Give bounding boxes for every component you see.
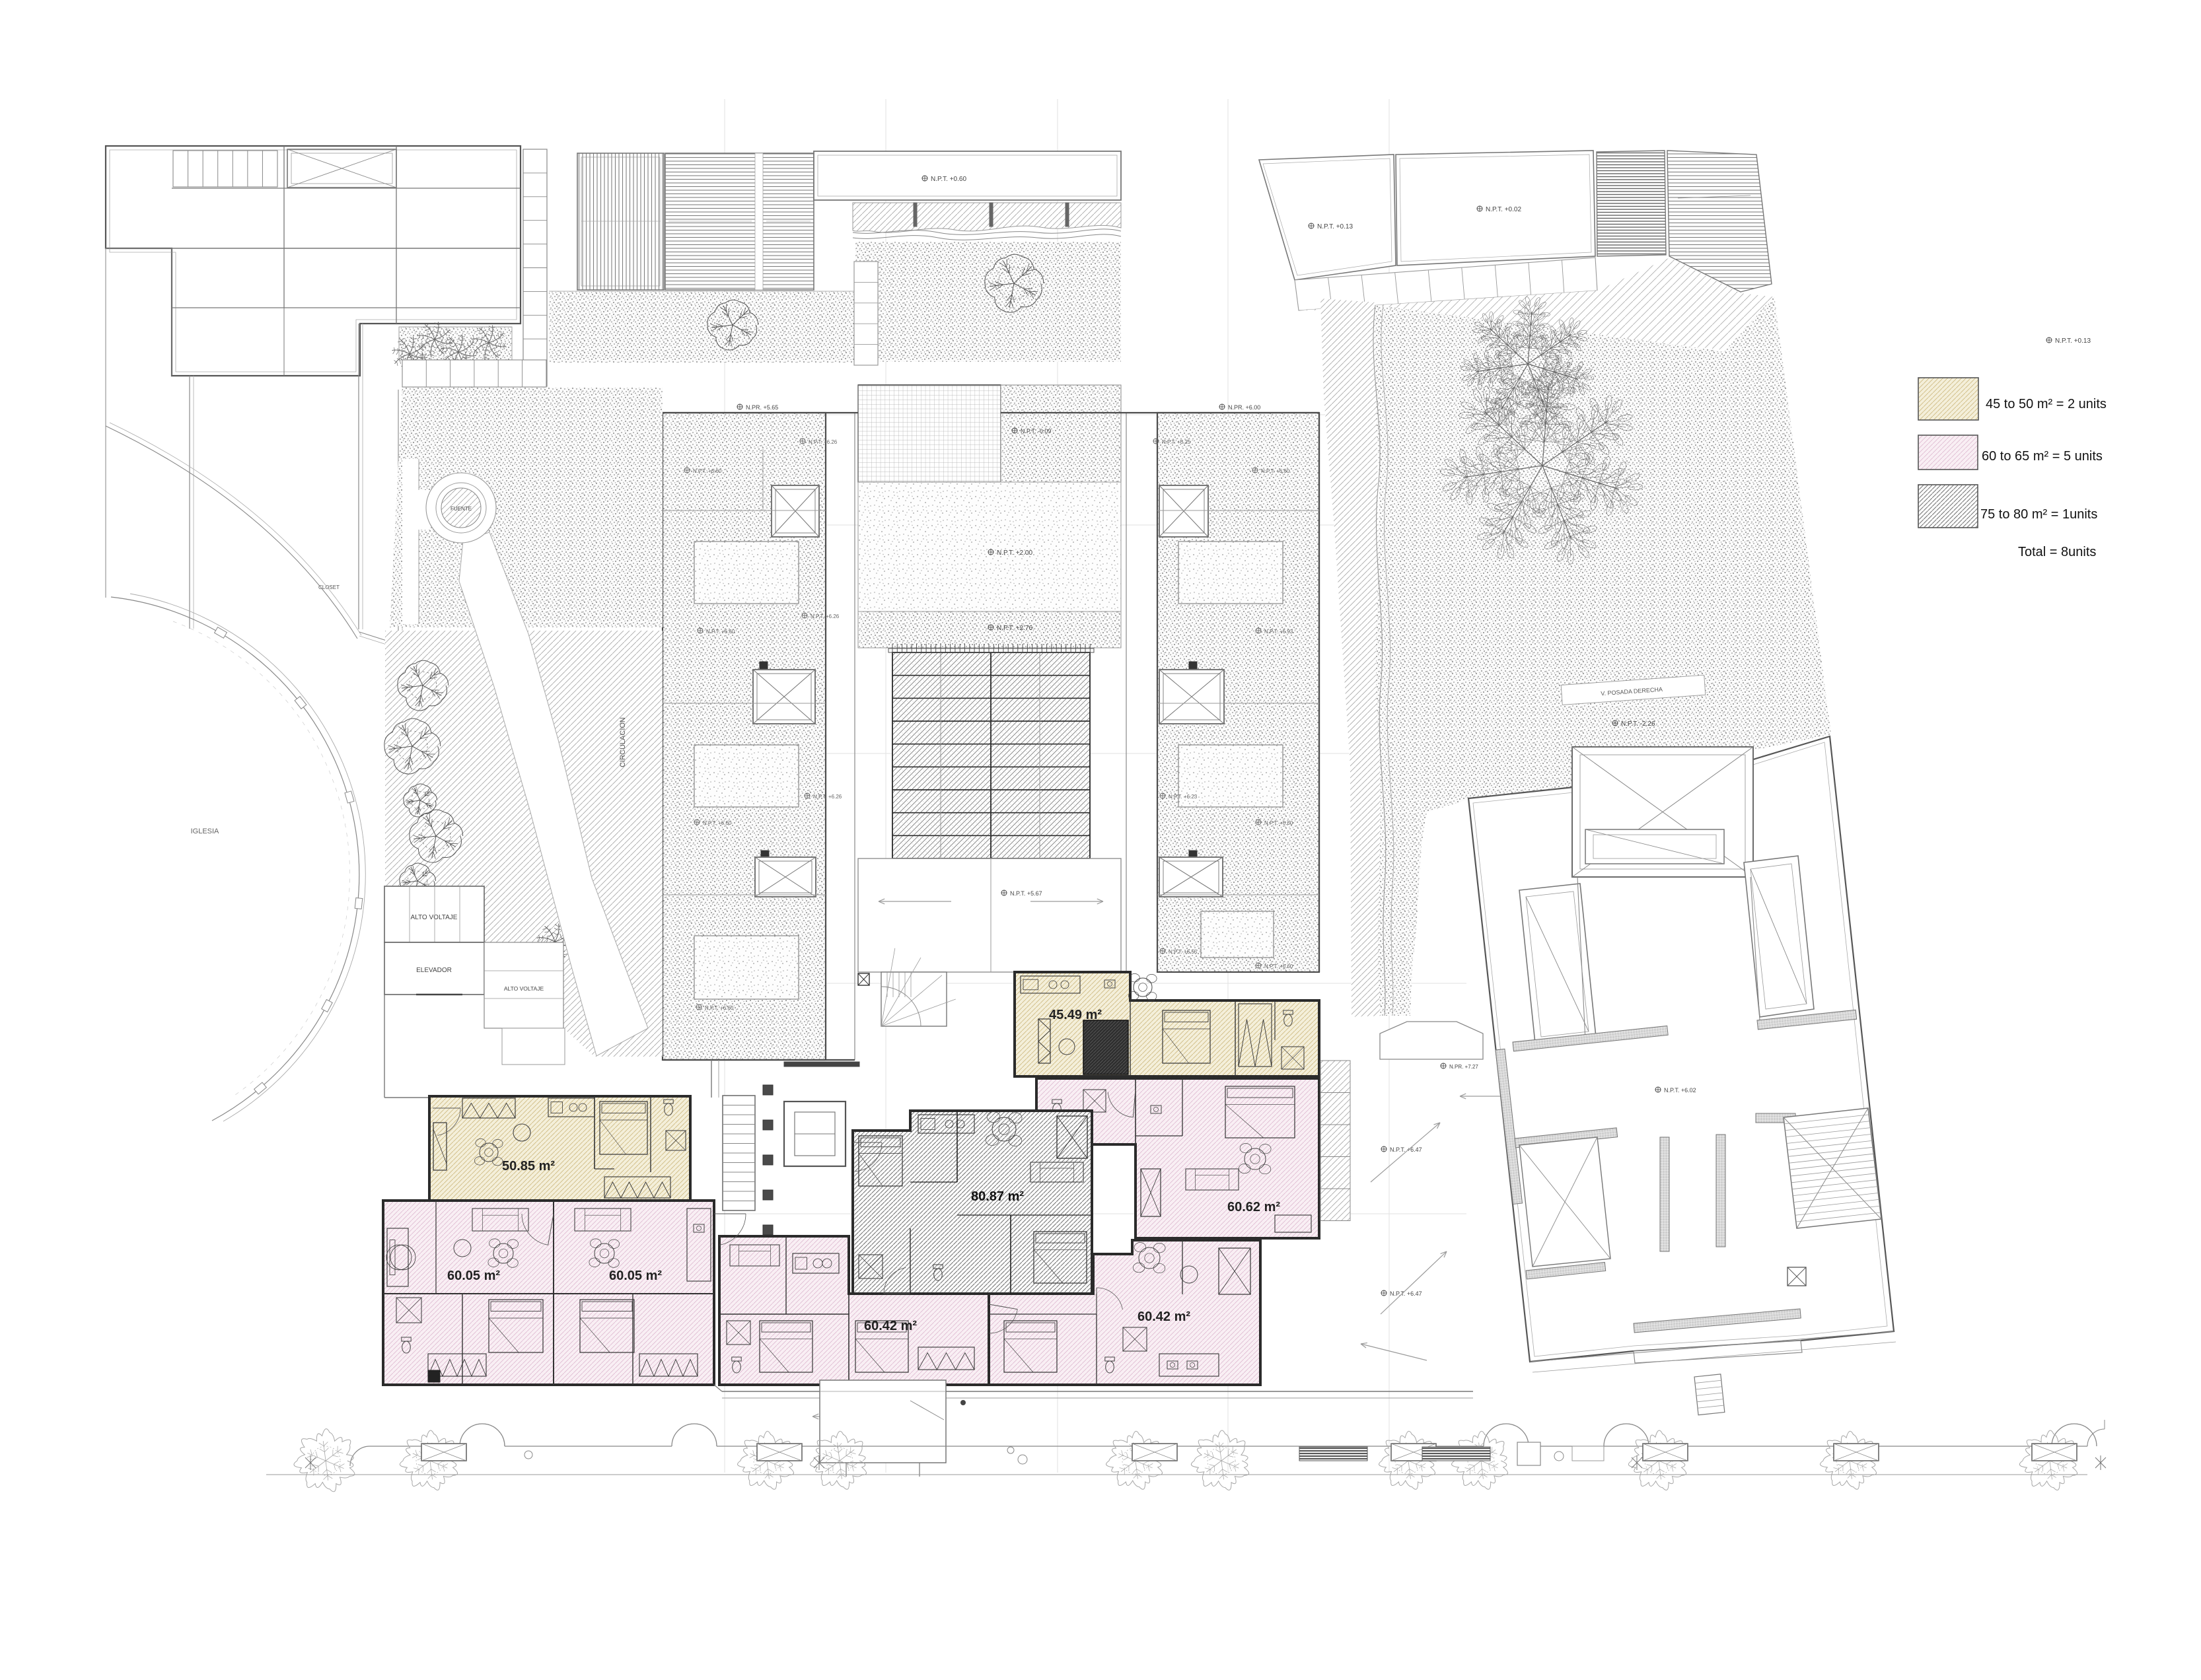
svg-text:N.P.T. +6.60: N.P.T. +6.60	[1261, 468, 1290, 474]
svg-text:N.P.T. +6.26: N.P.T. +6.26	[813, 794, 842, 800]
svg-text:N.P.T. +6.60: N.P.T. +6.60	[706, 629, 735, 635]
svg-text:ALTO VOLTAJE: ALTO VOLTAJE	[504, 985, 544, 992]
svg-text:N.P.T. +6.60: N.P.T. +6.60	[693, 468, 722, 474]
svg-text:N.P.T. +6.60: N.P.T. +6.60	[1264, 963, 1293, 969]
svg-text:ALTO VOLTAJE: ALTO VOLTAJE	[411, 914, 458, 921]
svg-text:N.PR. +5.65: N.PR. +5.65	[746, 404, 778, 411]
svg-text:N.P.T. +0.13: N.P.T. +0.13	[1317, 223, 1353, 230]
svg-text:N.P.T. +6.25: N.P.T. +6.25	[1162, 439, 1191, 445]
svg-text:60.42 m²: 60.42 m²	[864, 1319, 917, 1333]
svg-text:N.P.T. -0.09: N.P.T. -0.09	[1021, 428, 1051, 435]
svg-text:N.P.T. +6.47: N.P.T. +6.47	[1390, 1290, 1422, 1297]
svg-text:75 to 80 m² = 1units: 75 to 80 m² = 1units	[1980, 507, 2097, 522]
svg-text:N.P.T. +6.93: N.P.T. +6.93	[1264, 629, 1293, 635]
svg-text:N.PR. +7.27: N.PR. +7.27	[1449, 1064, 1478, 1070]
svg-text:50.85 m²: 50.85 m²	[502, 1159, 555, 1173]
svg-text:N.P.T. +2.00: N.P.T. +2.00	[997, 549, 1032, 557]
svg-text:N.P.T. -2.26: N.P.T. -2.26	[1621, 720, 1655, 728]
svg-text:FUENTE: FUENTE	[451, 506, 472, 512]
svg-text:CIRCULACION: CIRCULACION	[619, 717, 627, 767]
svg-text:N.P.T. +2.76: N.P.T. +2.76	[997, 625, 1032, 632]
svg-text:N.P.T. +6.55: N.P.T. +6.55	[1169, 949, 1198, 955]
svg-text:N.P.T. +0.13: N.P.T. +0.13	[2055, 337, 2091, 345]
svg-text:60.05 m²: 60.05 m²	[447, 1269, 500, 1283]
svg-text:N.P.T. +0.60: N.P.T. +0.60	[931, 176, 966, 183]
svg-text:N.PR. +6.00: N.PR. +6.00	[1228, 404, 1260, 411]
svg-text:45 to 50 m² = 2 units: 45 to 50 m² = 2 units	[1986, 397, 2107, 411]
svg-text:N.P.T. +6.60: N.P.T. +6.60	[703, 820, 732, 826]
svg-text:N.P.T. +0.02: N.P.T. +0.02	[1486, 206, 1521, 213]
svg-text:60.42 m²: 60.42 m²	[1137, 1310, 1190, 1324]
svg-text:ELEVADOR: ELEVADOR	[416, 967, 452, 974]
svg-text:N.P.T. +6.23: N.P.T. +6.23	[1169, 794, 1198, 800]
svg-text:60.05 m²: 60.05 m²	[609, 1269, 662, 1283]
svg-text:N.P.T. +6.26: N.P.T. +6.26	[809, 439, 838, 445]
svg-text:Total = 8units: Total = 8units	[2018, 545, 2096, 559]
svg-text:60.62 m²: 60.62 m²	[1227, 1200, 1280, 1214]
svg-text:N.P.T. +6.26: N.P.T. +6.26	[811, 613, 840, 619]
svg-text:N.P.T. +6.60: N.P.T. +6.60	[705, 1005, 734, 1011]
svg-text:N.P.T. +6.02: N.P.T. +6.02	[1664, 1087, 1696, 1094]
svg-text:60 to 65 m² = 5 units: 60 to 65 m² = 5 units	[1982, 449, 2103, 464]
svg-text:IGLESIA: IGLESIA	[191, 827, 219, 835]
svg-text:N.P.T. +5.67: N.P.T. +5.67	[1010, 890, 1042, 897]
svg-text:45.49 m²: 45.49 m²	[1049, 1008, 1102, 1022]
svg-text:80.87 m²: 80.87 m²	[971, 1189, 1024, 1204]
svg-text:N.P.T. +6.60: N.P.T. +6.60	[1264, 820, 1293, 826]
